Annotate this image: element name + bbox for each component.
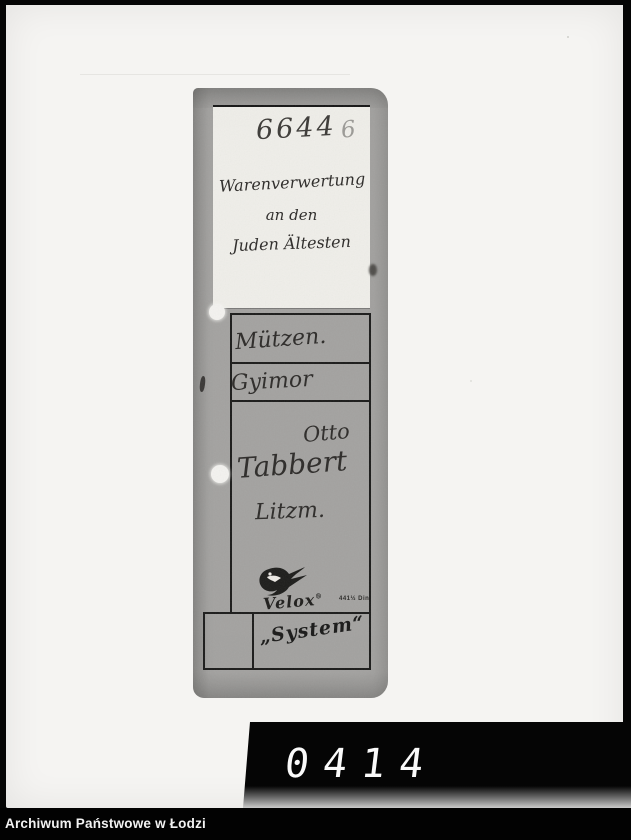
- label-title-line3: Juden Ältesten: [219, 231, 365, 255]
- rule-vertical-left: [230, 313, 232, 612]
- label-title: Warenverwertung an den Juden Ältesten: [219, 173, 364, 253]
- rule-brand-box-bottom: [203, 668, 371, 670]
- film-frame-counter: 0 4 1 4: [243, 722, 631, 808]
- rule-underline-1: [230, 362, 371, 364]
- edge-speck: [199, 376, 206, 392]
- counter-motion-blur: [243, 786, 631, 808]
- film-speck: [470, 380, 472, 382]
- label-title-line1: Warenverwertung: [219, 169, 365, 196]
- punch-hole-bottom: [211, 465, 229, 483]
- din-size-note: 441½ Din: [339, 596, 369, 602]
- label-title-line2: an den: [219, 206, 364, 224]
- archive-caption-bar: Archiwum Państwowe w Łodzi: [0, 808, 631, 840]
- frame-digit: 1: [359, 745, 388, 783]
- punch-hole-top: [209, 304, 225, 320]
- rule-vertical-right: [369, 313, 371, 668]
- handwritten-field-1: Mützen.: [234, 324, 327, 355]
- film-speck: [567, 36, 569, 38]
- archival-scan-page: { "photo": { "folder": { "label": { "arc…: [0, 0, 631, 840]
- frame-digit: 0: [283, 745, 312, 783]
- rule-top: [230, 313, 371, 315]
- rule-underline-2: [230, 400, 371, 402]
- registered-mark: ®: [315, 591, 324, 601]
- archive-number: 6644: [255, 111, 337, 146]
- brand-name: Velox®: [262, 589, 324, 613]
- rule-brand-box-divider: [252, 612, 254, 670]
- photograph-area: 6644 6 Warenverwertung an den Juden Älte…: [6, 5, 623, 808]
- handwritten-field-4: Tabbert: [236, 444, 348, 485]
- index-label: 6644 6 Warenverwertung an den Juden Älte…: [213, 105, 370, 308]
- system-label: „System“: [254, 611, 370, 649]
- frame-number: 0 4 1 4: [283, 745, 426, 783]
- archive-folder-cover: 6644 6 Warenverwertung an den Juden Älte…: [193, 88, 388, 698]
- archive-caption: Archiwum Państwowe w Łodzi: [0, 808, 631, 839]
- frame-digit: 4: [397, 745, 426, 783]
- rule-brand-box-left: [203, 612, 205, 670]
- page-number: 6: [340, 116, 357, 143]
- handwritten-field-2: Gyimor: [230, 367, 313, 396]
- film-scratch: [80, 74, 350, 75]
- folder-bottom-shade: [193, 672, 388, 698]
- frame-digit: 4: [321, 745, 350, 783]
- handwritten-field-3: Otto: [302, 419, 351, 447]
- ink-smudge: [369, 264, 377, 276]
- handwritten-field-5: Litzm.: [255, 498, 326, 525]
